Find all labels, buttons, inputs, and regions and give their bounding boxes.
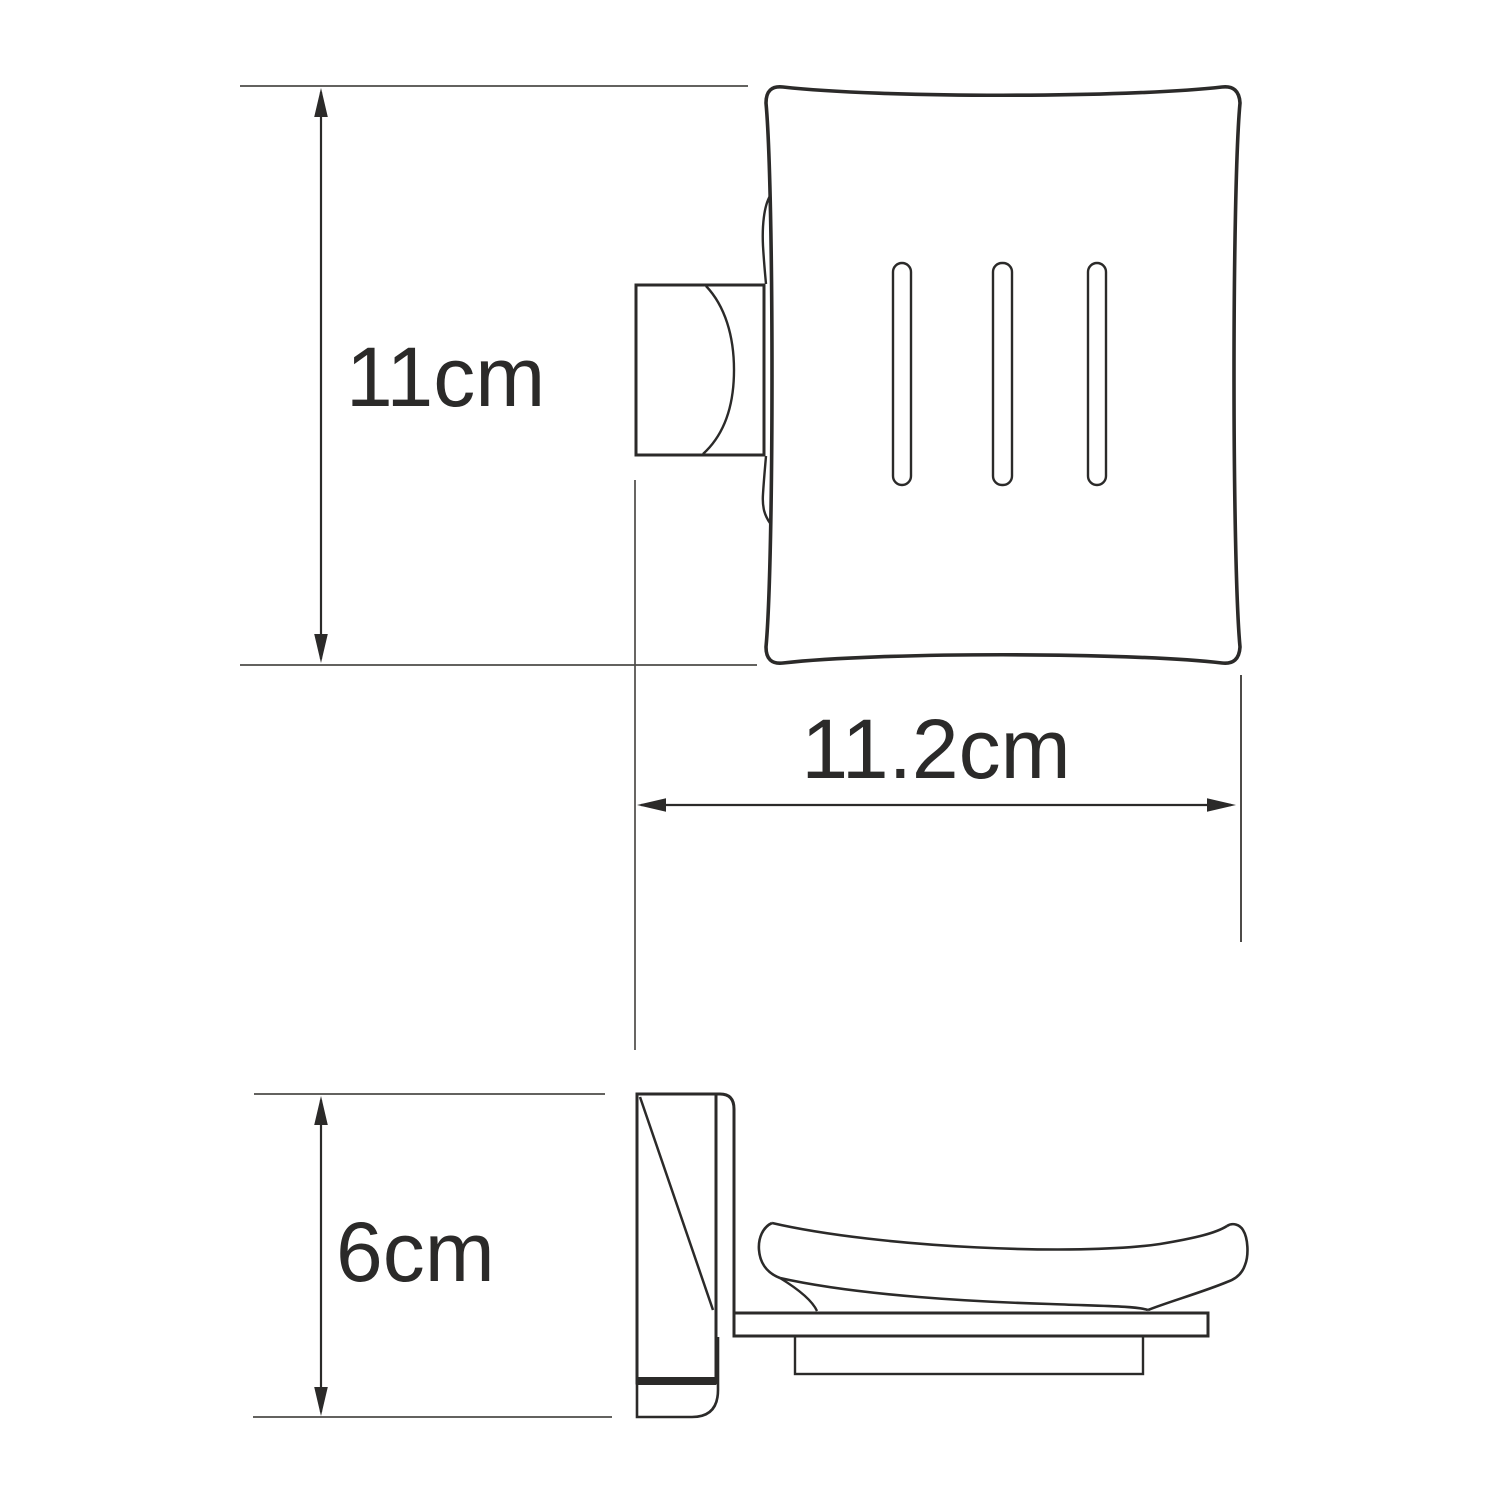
technical-drawing-page: 11cm 11.2cm 6cm — [0, 0, 1503, 1504]
soap-dish-technical-drawing: 11cm 11.2cm 6cm — [0, 0, 1503, 1504]
drain-slot-right — [1088, 263, 1106, 485]
retainer-bar-under-arm — [795, 1336, 1143, 1374]
dish-profile-left-lip — [759, 1223, 780, 1278]
front-view — [636, 87, 1240, 663]
soap-dish-face-outline — [766, 87, 1240, 663]
arrowhead-side-top — [314, 1096, 328, 1125]
drain-slot-left — [893, 263, 911, 485]
dimension-height: 11cm — [240, 86, 757, 665]
dimension-label-depth: 11.2cm — [801, 702, 1070, 796]
dimension-label-height: 11cm — [346, 330, 545, 424]
wall-bracket-front — [636, 285, 764, 455]
dimension-side-height: 6cm — [253, 1094, 612, 1417]
dish-profile-bottom-edge — [780, 1278, 1148, 1310]
dimension-depth: 11.2cm — [635, 480, 1241, 1050]
side-view — [637, 1094, 1247, 1417]
dish-profile-top-edge — [772, 1223, 1227, 1249]
mounting-plate-diagonal — [640, 1097, 713, 1310]
arrowhead-side-bottom — [314, 1387, 328, 1416]
mounting-plate-side — [637, 1094, 716, 1383]
holder-arm-side — [734, 1313, 1208, 1336]
mounting-plate-bottom-bar — [637, 1377, 716, 1385]
plate-cover-strip — [716, 1094, 734, 1313]
arrowhead-depth-left — [637, 798, 666, 812]
drain-slot-middle — [993, 263, 1012, 485]
bracket-clip-lower — [763, 456, 770, 523]
arrowhead-depth-right — [1207, 798, 1236, 812]
dimension-label-side-height: 6cm — [336, 1205, 495, 1299]
arrowhead-height-bottom — [314, 634, 328, 663]
arrowhead-height-top — [314, 88, 328, 117]
wall-bracket-post-curve — [703, 286, 734, 454]
